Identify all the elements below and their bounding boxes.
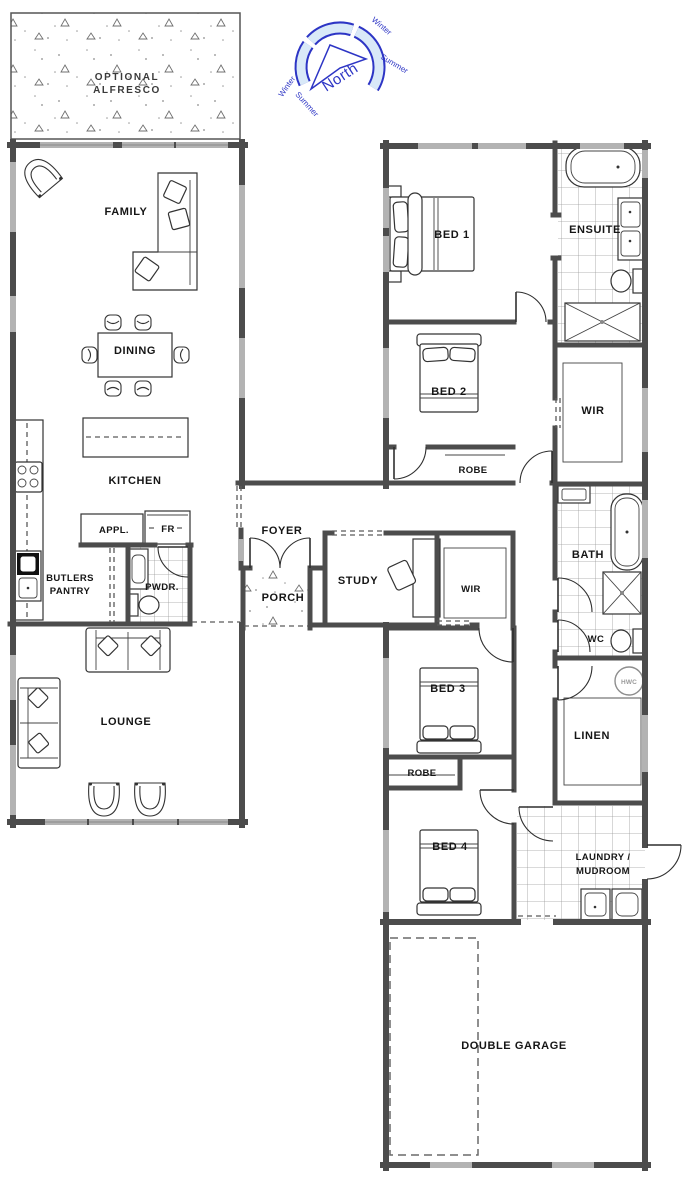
bed2-furniture xyxy=(417,334,481,412)
study-furniture xyxy=(387,539,440,617)
bed1-door xyxy=(516,292,546,322)
wir-hall-label: WIR xyxy=(461,584,481,595)
pillow xyxy=(423,888,448,901)
bed-head xyxy=(417,903,481,915)
linen-door xyxy=(558,666,592,700)
bed-head xyxy=(417,741,481,753)
toilet-icon xyxy=(633,269,643,293)
vanity-icon xyxy=(618,198,643,260)
compass-summer-label-sw: Summer xyxy=(293,90,320,119)
appliance-label: APPL. xyxy=(99,525,129,536)
lounge-label: LOUNGE xyxy=(101,716,152,728)
dining-label: DINING xyxy=(114,345,156,357)
garage-label: DOUBLE GARAGE xyxy=(461,1040,567,1052)
butlers-label-line2: PANTRY xyxy=(50,586,91,597)
hwc-label: HWC xyxy=(621,679,637,686)
wc-label: WC xyxy=(588,634,605,645)
pillow xyxy=(450,888,475,901)
foyer-label: FOYER xyxy=(262,525,303,537)
study-label: STUDY xyxy=(338,575,378,587)
robe3-label: ROBE xyxy=(407,768,436,779)
hall-door xyxy=(520,451,552,483)
bed4-door xyxy=(480,790,514,824)
floor-plan-page: HWC xyxy=(0,0,690,1189)
compass: North Winter Summer Winter Summer xyxy=(277,15,410,119)
laundry-label-line2: MUDROOM xyxy=(576,866,630,877)
wir-main-label: WIR xyxy=(581,405,604,417)
floor-plan: HWC xyxy=(0,0,690,1189)
laundry-tub-icon xyxy=(612,889,642,920)
toilet-icon xyxy=(633,629,643,653)
hwc-unit: HWC xyxy=(615,667,643,695)
bed3-door xyxy=(479,628,513,662)
butlers-label-line1: BUTLERS xyxy=(46,573,94,584)
pillow xyxy=(393,202,409,233)
linen-label: LINEN xyxy=(574,730,610,742)
alfresco-label-line1: OPTIONAL xyxy=(95,72,159,83)
armchair xyxy=(18,153,63,198)
powder-label: PWDR. xyxy=(145,582,179,593)
porch-label: PORCH xyxy=(262,592,305,604)
family-furniture xyxy=(18,153,197,290)
armchair xyxy=(89,783,120,816)
cushion xyxy=(168,208,190,230)
armchair xyxy=(135,783,166,816)
kitchen-label: KITCHEN xyxy=(108,475,161,487)
bath-label: BATH xyxy=(572,549,604,561)
wir-hall-shelf xyxy=(444,548,506,618)
bed2-door xyxy=(394,447,426,479)
pillow xyxy=(423,726,448,739)
bed3-furniture xyxy=(417,668,481,753)
bed4-label: BED 4 xyxy=(432,841,468,853)
laundry-label-line1: LAUNDRY / xyxy=(576,852,631,863)
laundry-fixtures xyxy=(581,889,642,920)
pillow xyxy=(450,347,476,362)
wc-fixtures xyxy=(611,629,643,653)
pillow xyxy=(450,726,475,739)
robe2-label: ROBE xyxy=(458,465,487,476)
cooktop-icon xyxy=(15,462,42,492)
bed-runner xyxy=(408,193,422,275)
alfresco-label-line2: ALFRESCO xyxy=(93,85,161,96)
compass-winter-label-ne: Winter xyxy=(370,15,394,37)
pillow xyxy=(423,347,449,362)
pillow xyxy=(393,237,409,268)
bed2-label: BED 2 xyxy=(431,386,466,398)
ensuite-label: ENSUITE xyxy=(569,224,621,236)
laundry-exterior-door xyxy=(647,845,681,879)
fridge-label: FR xyxy=(161,524,174,535)
bed3-label: BED 3 xyxy=(430,683,465,695)
front-double-door xyxy=(250,538,310,568)
family-label: FAMILY xyxy=(105,206,148,218)
bed1-label: BED 1 xyxy=(434,229,469,241)
study-chair xyxy=(387,559,417,591)
